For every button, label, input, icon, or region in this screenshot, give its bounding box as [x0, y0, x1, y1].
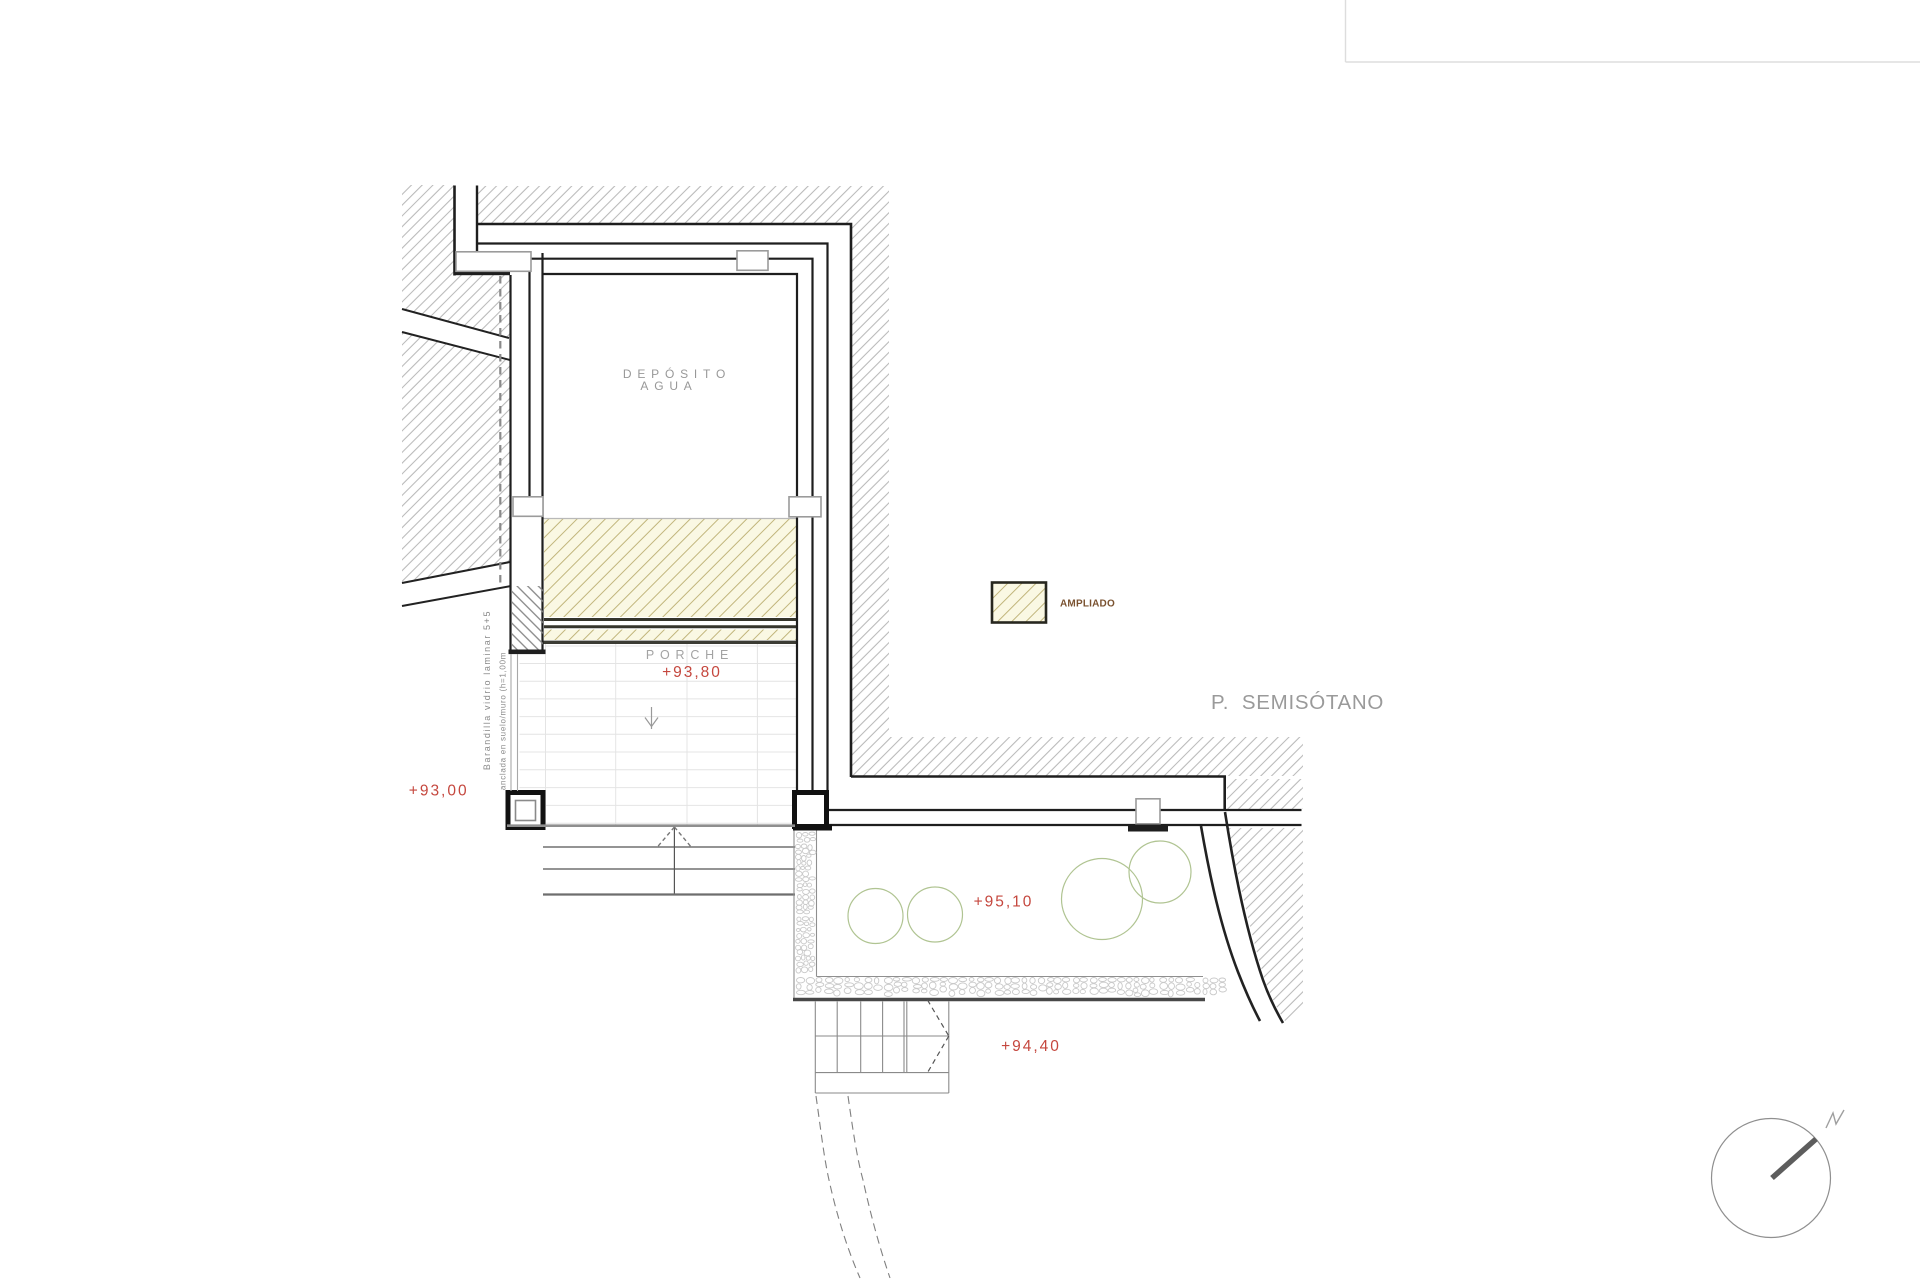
svg-text:+94,40: +94,40	[1001, 1038, 1061, 1055]
svg-text:Barandilla vidrio laminar 5+5: Barandilla vidrio laminar 5+5	[482, 610, 492, 770]
svg-text:P. SEMISÓTANO: P. SEMISÓTANO	[1211, 691, 1384, 714]
svg-text:AMPLIADO: AMPLIADO	[1060, 599, 1115, 610]
svg-text:+95,10: +95,10	[974, 894, 1034, 911]
svg-text:anclada en suelo/muro (h=1,00m: anclada en suelo/muro (h=1,00m	[499, 652, 508, 790]
svg-text:+93,00: +93,00	[409, 783, 469, 800]
svg-text:+93,80: +93,80	[662, 664, 722, 681]
svg-text:AGUA: AGUA	[640, 379, 697, 393]
svg-text:PORCHE: PORCHE	[646, 648, 734, 662]
